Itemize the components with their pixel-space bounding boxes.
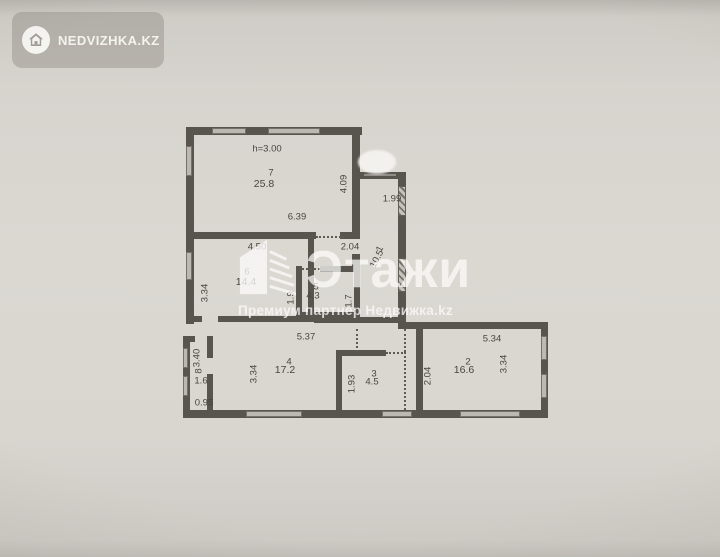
window-mark xyxy=(382,411,412,417)
dim-lobby-width: 2.04 xyxy=(341,242,360,253)
entrance-door xyxy=(364,174,396,176)
wall-segment xyxy=(354,266,360,318)
room5-area: 4.3 xyxy=(306,291,319,302)
photo-glare xyxy=(358,150,396,174)
dim-hall-width: 5.37 xyxy=(297,332,316,343)
dim-room7-depth: 4.09 xyxy=(339,175,350,194)
dim-bath5-left: 1.9 xyxy=(286,291,297,304)
window-mark xyxy=(541,336,547,360)
door-opening xyxy=(404,356,406,410)
dim-room2-width: 5.34 xyxy=(483,334,502,345)
watermark: Этажи Премиум партнер Недвижка.kz xyxy=(238,238,488,318)
dim-room3-left: 1.93 xyxy=(347,375,358,394)
window-mark xyxy=(246,411,302,417)
window-mark xyxy=(186,252,192,280)
door-opening xyxy=(302,268,320,270)
room8-number: 8 xyxy=(194,368,205,373)
dim-room4-depth: 3.34 xyxy=(249,365,260,384)
nedvizhka-badge: NEDVIZHKA.KZ xyxy=(12,12,164,68)
dim-entry-width: 1.99 xyxy=(383,194,402,205)
wall-segment xyxy=(308,238,314,318)
room7-area: 25.8 xyxy=(254,178,274,190)
wall-segment xyxy=(336,350,386,356)
dim-balcony-width: 0.95 xyxy=(195,398,214,409)
door-opening xyxy=(386,352,406,354)
window-mark xyxy=(212,128,246,134)
room2-area: 16.6 xyxy=(454,364,474,376)
dim-room7-width: 6.39 xyxy=(288,212,307,223)
photo-background: NEDVIZHKA.KZ xyxy=(0,0,720,557)
dim-room6-depth: 3.34 xyxy=(200,284,211,303)
dim-room2-depth: 3.34 xyxy=(499,355,510,374)
wall-segment xyxy=(186,232,316,239)
wall-segment xyxy=(352,254,360,268)
room4-area: 17.2 xyxy=(275,364,295,376)
door-opening xyxy=(316,236,344,238)
room3-area: 4.5 xyxy=(365,377,378,388)
door-opening xyxy=(356,329,358,352)
dim-bath5-right: 1.7 xyxy=(344,294,355,307)
badge-label: NEDVIZHKA.KZ xyxy=(58,33,160,48)
wall-segment xyxy=(207,374,213,418)
room7-number: 7 xyxy=(268,168,273,179)
window-mark xyxy=(541,374,547,398)
window-mark xyxy=(183,348,188,368)
window-mark xyxy=(183,376,188,396)
shared-wall-hatch xyxy=(398,258,406,292)
wall-segment xyxy=(296,312,360,318)
house-icon xyxy=(22,26,50,54)
wall-segment xyxy=(404,322,548,329)
window-mark xyxy=(186,146,192,176)
dim-room6-width: 4.50 xyxy=(248,242,267,253)
wall-segment xyxy=(296,266,302,318)
window-mark xyxy=(268,128,320,134)
wall-segment xyxy=(352,127,360,239)
window-mark xyxy=(460,411,520,417)
wall-segment xyxy=(183,336,195,342)
dim-ceiling-height: h=3.00 xyxy=(252,144,281,155)
room1-area: 10.5 xyxy=(368,248,386,269)
door-opening xyxy=(404,329,406,352)
dim-room3-right: 2.04 xyxy=(423,367,434,386)
room6-area: 14.4 xyxy=(236,276,256,288)
wall-segment xyxy=(207,336,213,358)
dim-balcony-length: 3.40 xyxy=(192,349,203,368)
wall-segment xyxy=(336,350,342,414)
room8-area: 1.6 xyxy=(194,376,207,387)
wall-segment xyxy=(186,316,202,322)
